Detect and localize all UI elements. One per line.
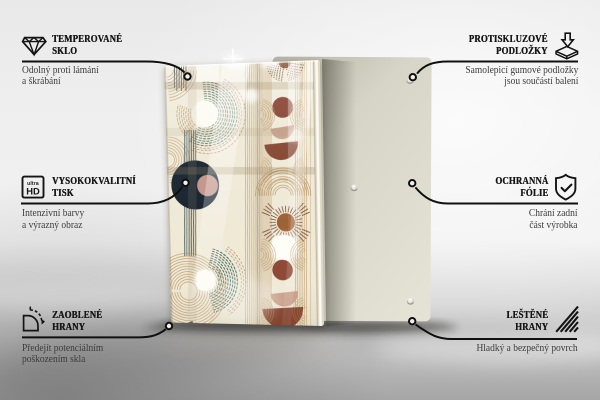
svg-text:HD: HD bbox=[26, 186, 40, 197]
